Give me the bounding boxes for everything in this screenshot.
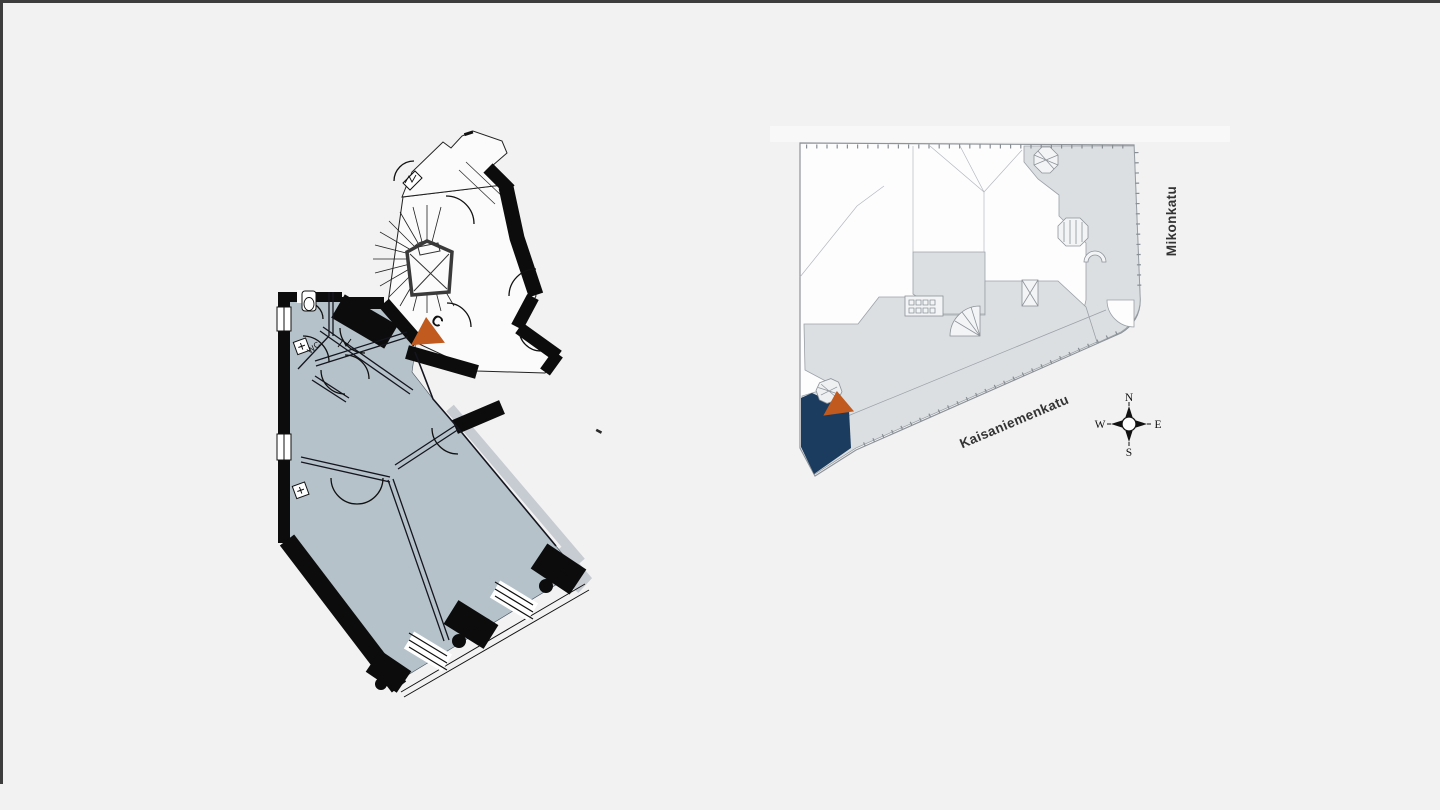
compass-west-label: W bbox=[1095, 419, 1106, 431]
compass-rose-icon: N E S W bbox=[1095, 392, 1162, 459]
elevator-core bbox=[407, 241, 452, 295]
compass-east-label: E bbox=[1154, 419, 1161, 431]
floor-plan: WC C bbox=[277, 131, 589, 697]
page: WC C bbox=[0, 0, 1440, 810]
window-frame-left bbox=[0, 0, 3, 784]
window-frame-top bbox=[0, 0, 1440, 3]
plans-canvas: WC C bbox=[0, 0, 1440, 810]
street-label-mikonkatu: Mikonkatu bbox=[1164, 186, 1179, 256]
compass-north-label: N bbox=[1125, 392, 1134, 404]
stray-mark bbox=[596, 429, 603, 434]
street-label-kaisaniemenkatu: Kaisaniemenkatu bbox=[957, 392, 1071, 452]
compass-south-label: S bbox=[1126, 447, 1132, 459]
